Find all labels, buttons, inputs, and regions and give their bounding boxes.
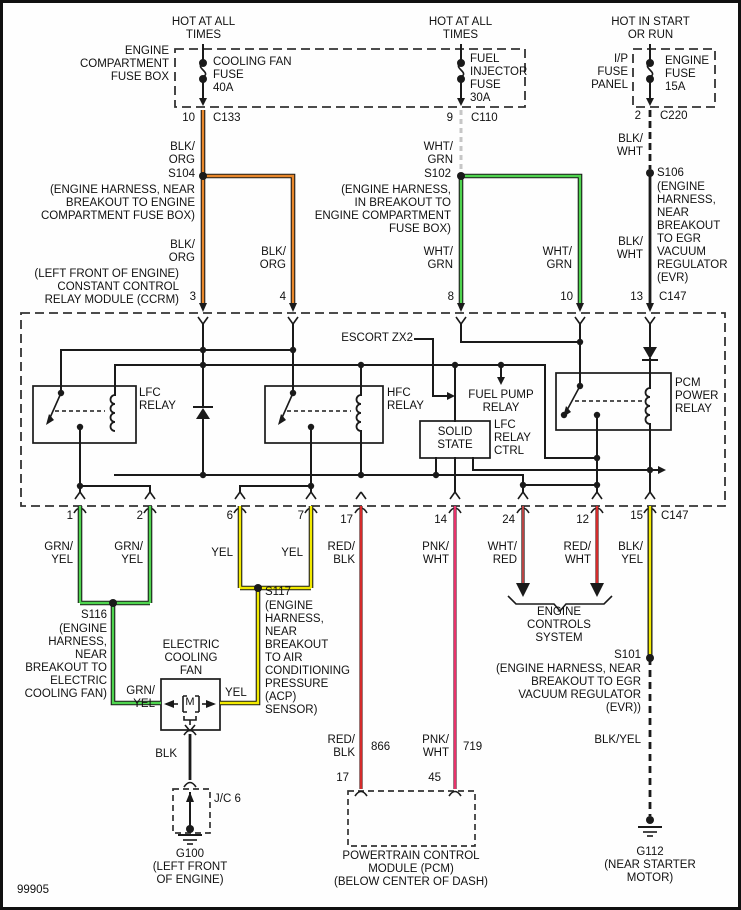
splice-s104-desc: (ENGINE HARNESS, NEAR BREAKOUT TO ENGINE… [23, 184, 195, 223]
wire-label-blk-yel-p15: BLK/ YEL [601, 541, 643, 567]
splice-s104: S104 [155, 168, 195, 181]
splice-s117: S117 [265, 586, 309, 599]
wire-label-grn-yel-fan: GRN/ YEL [115, 685, 155, 711]
wire-label-red-blk-866: RED/ BLK [313, 734, 355, 760]
pcm-power-relay-label: PCM POWER RELAY [675, 377, 731, 416]
ccrm-pin-7: 7 [290, 510, 304, 523]
junction-jc6-label: J/C 6 [214, 793, 254, 806]
splice-s102: S102 [411, 168, 451, 181]
ground-g112-desc: (NEAR STARTER MOTOR) [595, 859, 705, 885]
wire-label-blk-org-p3: BLK/ ORG [153, 239, 195, 265]
pcm-pin-45: 45 [421, 772, 441, 785]
pcm-power-relay-symbol [561, 383, 650, 424]
wire-label-blk-wht-top: BLK/ WHT [597, 133, 643, 159]
wire-label-red-blk-p17: RED/ BLK [313, 541, 355, 567]
pcm-entry-connectors [355, 792, 461, 797]
pin-10-c133: 10 [171, 112, 195, 125]
ccrm-connector-c147-bottom: C147 [661, 510, 701, 523]
splice-s116-desc: (ENGINE HARNESS, NEAR BREAKOUT TO ELECTR… [17, 623, 107, 701]
connector-c220: C220 [660, 110, 705, 123]
ccrm-pin-1: 1 [59, 510, 73, 523]
ccrm-pin-2: 2 [129, 510, 143, 523]
wire-label-pnk-wht-p14: PNK/ WHT [407, 541, 449, 567]
ground-g112: G112 [625, 846, 675, 859]
engine-controls-system-label: ENGINE CONTROLS SYSTEM [517, 606, 601, 645]
ccrm-pin-24: 24 [495, 514, 515, 527]
wire-label-wht-red-p24: WHT/ RED [475, 541, 517, 567]
wire-label-blk-wht-p13: BLK/ WHT [597, 236, 643, 262]
wire-blk-org [203, 110, 293, 306]
splice-s106: S106 [657, 167, 699, 180]
power-heading-right: HOT IN START OR RUN [593, 16, 708, 42]
wire-label-yel-p7: YEL [269, 547, 303, 560]
diagram-code: 99905 [17, 884, 77, 897]
ccrm-pin-6: 6 [219, 510, 233, 523]
ip-fuse-panel-label: I/P FUSE PANEL [580, 53, 628, 92]
fuse-box-outlines [21, 49, 725, 846]
ccrm-pin-14: 14 [427, 514, 447, 527]
wire-label-yel-p6: YEL [199, 547, 233, 560]
wire-label-blk: BLK [143, 748, 177, 761]
lfc-relay-ctrl-label: LFC RELAY CTRL [494, 419, 544, 458]
hfc-relay-label: HFC RELAY [387, 387, 433, 413]
ccrm-bottom-connectors [74, 492, 656, 513]
wire-wht-grn [461, 176, 580, 306]
wire-blk-yel-ground [646, 506, 654, 816]
escort-zx2-note: ESCORT ZX2 [335, 332, 413, 345]
g112-ground [639, 816, 661, 836]
fuel-pump-relay-label: FUEL PUMP RELAY [455, 389, 547, 415]
splice-s117-desc: (ENGINE HARNESS, NEAR BREAKOUT TO AIR CO… [265, 600, 369, 717]
fuel-injector-fuse-label: FUEL INJECTOR FUSE 30A [470, 53, 550, 105]
wire-label-blk-org-p4: BLK/ ORG [244, 246, 286, 272]
splice-s106-desc: (ENGINE HARNESS, NEAR BREAKOUT TO EGR VA… [657, 181, 741, 285]
wire-label-wht-grn-top: WHT/ GRN [407, 141, 453, 167]
pin-9-c110: 9 [429, 112, 453, 125]
electric-cooling-fan-label: ELECTRIC COOLING FAN [153, 639, 229, 678]
wire-label-red-wht-p12: RED/ WHT [549, 541, 591, 567]
pcm-pin-17: 17 [329, 772, 349, 785]
power-heading-left: HOT AT ALL TIMES [146, 16, 261, 42]
power-heading-mid: HOT AT ALL TIMES [403, 16, 518, 42]
ccrm-pin-8: 8 [439, 291, 454, 304]
ccrm-pin-13: 13 [621, 291, 643, 304]
ccrm-pin-4: 4 [271, 291, 286, 304]
connector-c133: C133 [213, 112, 258, 125]
wire-label-grn-yel-p2: GRN/ YEL [101, 541, 143, 567]
lfc-relay-label: LFC RELAY [139, 387, 185, 413]
splice-s116: S116 [65, 609, 107, 622]
pin-2-c220: 2 [617, 110, 641, 123]
wire-wht-red-ecs [516, 506, 530, 597]
wire-label-pnk-wht-719: PNK/ WHT [407, 734, 449, 760]
wire-label-yel-fan: YEL [225, 687, 259, 700]
splice-s102-desc: (ENGINE HARNESS, IN BREAKOUT TO ENGINE C… [309, 184, 451, 236]
ccrm-pin-17: 17 [333, 514, 353, 527]
splice-s101: S101 [601, 649, 641, 662]
ccrm-module-label: (LEFT FRONT OF ENGINE) CONSTANT CONTROL … [23, 268, 179, 307]
ccrm-pin-15: 15 [623, 510, 643, 523]
ground-g100: G100 [165, 848, 215, 861]
ccrm-connector-c147-top: C147 [659, 291, 699, 304]
ground-g100-desc: (LEFT FRONT OF ENGINE) [139, 861, 241, 887]
wire-label-blk-yel-ground: BLK/YEL [589, 734, 641, 747]
cooling-fan-fuse-label: COOLING FAN FUSE 40A [213, 56, 308, 95]
circuit-719: 719 [463, 741, 493, 754]
solid-state-label: SOLID STATE [420, 426, 490, 452]
wire-label-wht-grn-p8: WHT/ GRN [407, 246, 453, 272]
ccrm-pin-12: 12 [569, 514, 589, 527]
ccrm-pin-10: 10 [551, 291, 573, 304]
hfc-relay-symbol [278, 390, 361, 431]
engine-compartment-fuse-box-label: ENGINE COMPARTMENT FUSE BOX [59, 45, 169, 84]
wire-label-wht-grn-p10: WHT/ GRN [526, 246, 572, 272]
wiring-diagram-page: HOT AT ALL TIMES HOT AT ALL TIMES HOT IN… [0, 0, 741, 910]
ccrm-pin-3: 3 [181, 291, 196, 304]
splice-s101-desc: (ENGINE HARNESS, NEAR BREAKOUT TO EGR VA… [465, 663, 641, 715]
wire-label-grn-yel-p1: GRN/ YEL [31, 541, 73, 567]
connector-c110: C110 [471, 112, 516, 125]
motor-m-symbol: M [184, 696, 196, 709]
wire-label-blk-org-top: BLK/ ORG [153, 141, 195, 167]
lfc-relay-symbol [46, 390, 115, 431]
engine-fuse-label: ENGINE FUSE 15A [665, 55, 725, 94]
pcm-module-label: POWERTRAIN CONTROL MODULE (PCM) (BELOW C… [311, 850, 511, 889]
circuit-866: 866 [371, 741, 401, 754]
